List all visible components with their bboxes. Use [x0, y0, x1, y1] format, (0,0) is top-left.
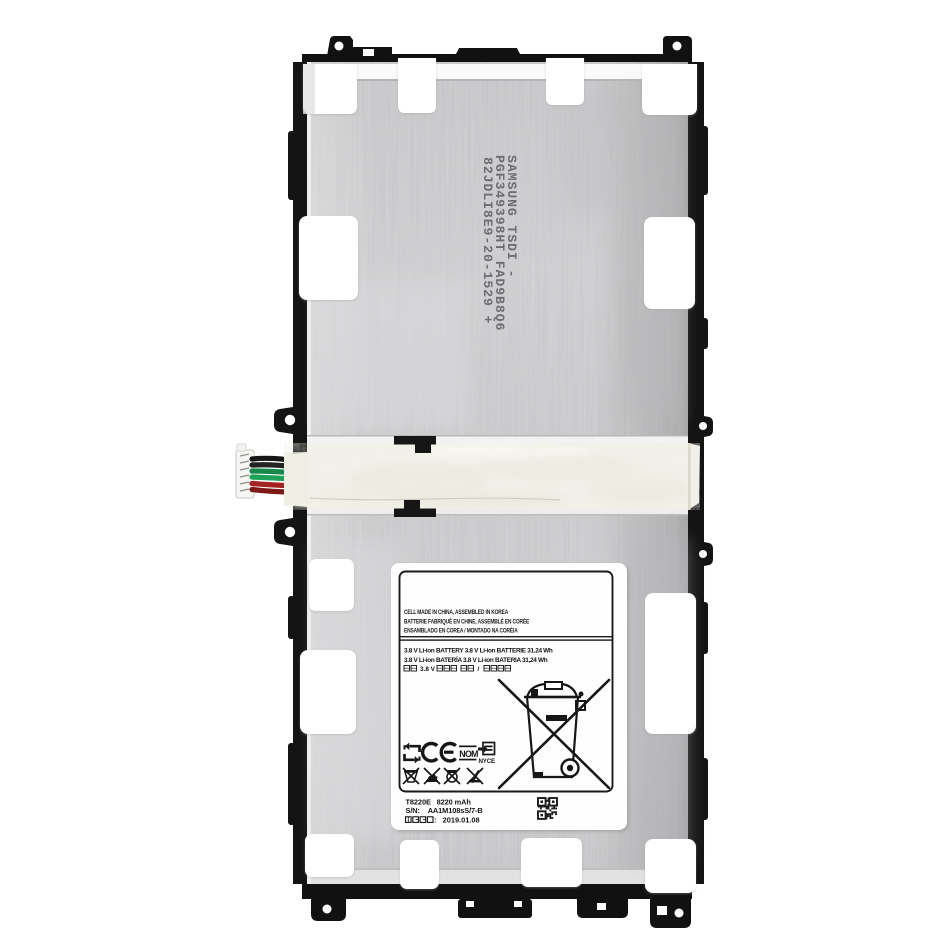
- svg-text:ENSAMBLADO EN COREA / MONTADO: ENSAMBLADO EN COREA / MONTADO NA CORÉIA: [404, 626, 518, 635]
- svg-text:3.8 V Li-ion BATTERY 3.8 V Li-: 3.8 V Li-ion BATTERY 3.8 V Li-ion BATTER…: [404, 648, 553, 655]
- svg-text:3.8 V: 3.8 V: [420, 666, 436, 673]
- svg-text:CELL MADE IN CHINA, ASSEMBLED: CELL MADE IN CHINA, ASSEMBLED IN KOREA: [404, 610, 508, 617]
- svg-text:: 2019.01.08: : 2019.01.08: [434, 816, 480, 825]
- svg-text:S/N: AA1M108sS/7-B: S/N: AA1M108sS/7-B: [406, 806, 483, 815]
- svg-text:3.8 V Li-ion BATERÍA 3.8 V Li: 3.8 V Li-ion BATERÍA 3.8 V Li-ion BATERI…: [404, 655, 548, 664]
- svg-text:NYCE: NYCE: [479, 758, 495, 765]
- svg-text:BATTERIE FABRIQUÉ EN CHINE, AS: BATTERIE FABRIQUÉ EN CHINE, ASSEMBLÉ EN …: [404, 617, 529, 626]
- svg-text:/: /: [478, 666, 480, 673]
- svg-text:82JDLI8E9-20-1529 +: 82JDLI8E9-20-1529 +: [480, 157, 495, 324]
- svg-text:NOM: NOM: [459, 749, 478, 759]
